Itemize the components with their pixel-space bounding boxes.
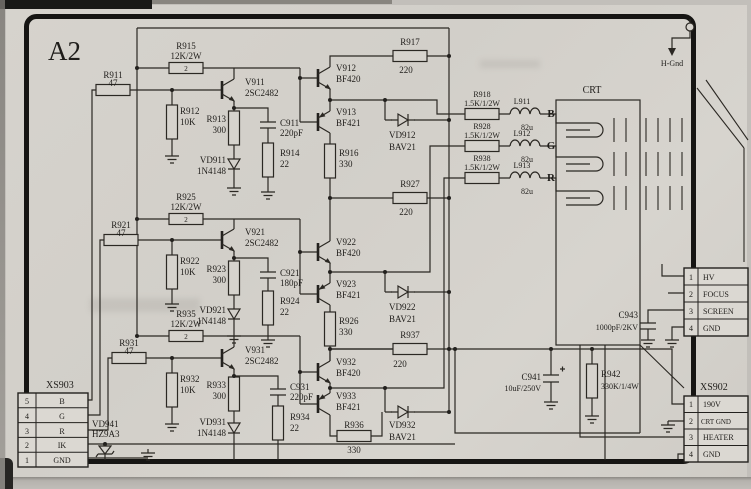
- label-val: 47: [117, 228, 127, 238]
- pin-number: 2: [689, 290, 693, 299]
- ground-icon: [544, 398, 558, 409]
- resistor-r924: [263, 291, 274, 325]
- label-ref: C921: [280, 268, 300, 278]
- resistor-r912: [167, 105, 178, 139]
- label-ref: VD931: [200, 417, 227, 427]
- label-val: BF420: [336, 368, 361, 378]
- label-inner: 2: [184, 333, 188, 341]
- pin-number: 5: [25, 397, 29, 406]
- label-ref: VD932: [389, 420, 416, 430]
- resistor-r932: [167, 373, 178, 407]
- resistor-r937: [393, 344, 427, 355]
- pin-number: 1: [689, 273, 693, 282]
- resistor-r913: [229, 111, 240, 145]
- label-val: 1N4148: [197, 166, 226, 176]
- label-ref: R923: [206, 264, 226, 274]
- ground-icon: [227, 184, 241, 195]
- label-ref: R937: [400, 330, 420, 340]
- label-ref: V933: [336, 391, 356, 401]
- label-ref: V911: [245, 77, 265, 87]
- label-ref: R922: [180, 256, 200, 266]
- label-val: 2SC2482: [245, 356, 279, 366]
- label-ref: R942: [601, 369, 621, 379]
- resistor-r923: [229, 261, 240, 295]
- label-val: 12K/2W: [171, 51, 203, 61]
- label-ref: C941: [521, 372, 541, 382]
- crt-grid-electrodes: [614, 118, 682, 210]
- pin-number: 4: [25, 412, 29, 421]
- resistor-r934: [273, 406, 284, 440]
- label-val: 1.5K/1/2W: [464, 163, 500, 172]
- ground-icon: [661, 421, 675, 432]
- diode-vd921: [228, 302, 240, 326]
- resistor-r927: [393, 193, 427, 204]
- pin-number: 3: [689, 433, 693, 442]
- connector-label: XS902: [700, 382, 728, 393]
- label-ref: R914: [280, 148, 300, 158]
- channel-r: R931 47 R935 12K/2W 2 V931 2SC2482 R932 …: [88, 154, 566, 460]
- pin-number: 2: [25, 441, 29, 450]
- resistor-r928: [465, 141, 499, 152]
- pin-label: G: [59, 412, 65, 421]
- label-ref: V913: [336, 107, 356, 117]
- label-val: 1N4148: [197, 428, 226, 438]
- pin-label: IK: [58, 441, 67, 450]
- label-ref: R917: [400, 37, 420, 47]
- label-ref: R912: [180, 106, 200, 116]
- transistor-v932: [318, 361, 331, 384]
- label-ref: V931: [245, 345, 265, 355]
- signal-letter: R: [547, 172, 556, 184]
- label-ref: R916: [339, 148, 359, 158]
- label-val: 22: [280, 307, 289, 317]
- label-ref: L911: [514, 97, 531, 106]
- label-ref: R938: [473, 154, 490, 163]
- label-val: 300: [213, 275, 227, 285]
- label-val: 10K: [180, 117, 196, 127]
- label-val: 220: [399, 207, 413, 217]
- pin-label: FOCUS: [703, 290, 729, 299]
- label-ref: V922: [336, 237, 356, 247]
- ground-icon: [641, 336, 655, 347]
- diode-vd932: [391, 406, 415, 418]
- scan-artifact-left-edge: [0, 0, 5, 489]
- transistor-v923: [318, 283, 330, 305]
- label-ref: R925: [176, 192, 196, 202]
- misc-components: VD941 HZ9A3 C941 10uF/250V R942 330K/1/4…: [88, 264, 684, 460]
- label-ref: R935: [176, 309, 196, 319]
- pin-number: 2: [689, 417, 693, 426]
- label-ref: R918: [473, 90, 490, 99]
- label-ref: R932: [180, 374, 200, 384]
- label-val: 82u: [521, 187, 533, 196]
- capacitor-c931: [270, 382, 286, 402]
- label-val: 10K: [180, 267, 196, 277]
- label-val: 330: [339, 327, 353, 337]
- pin-label: R: [59, 427, 65, 436]
- label-val: 220pF: [290, 392, 313, 402]
- pin-label: B: [59, 397, 64, 406]
- resistor-r926: [325, 312, 336, 346]
- label-ref: C931: [290, 382, 310, 392]
- transistor-v933: [318, 393, 330, 415]
- ground-icon: [665, 336, 679, 347]
- label-ref: VD941: [92, 419, 119, 429]
- schematic-drawing: R911 47 R915 12K/2W 2 V911 2SC2482 R912 …: [0, 0, 751, 489]
- resistor-r917: [393, 51, 427, 62]
- diode-vd911: [228, 152, 240, 176]
- resistor-r914: [263, 143, 274, 177]
- pin-number: 3: [25, 427, 29, 436]
- diode-vd931: [228, 416, 240, 440]
- connector-label: XS903: [46, 380, 74, 391]
- ground-icon: [585, 412, 599, 423]
- label-val: 180pF: [280, 278, 303, 288]
- transistor-v913: [318, 111, 330, 133]
- transistor-v931: [222, 347, 235, 370]
- label-val: BAV21: [389, 142, 416, 152]
- pin-number: 4: [689, 450, 693, 459]
- ground-icon: [165, 420, 179, 431]
- ground-icon: [261, 188, 275, 199]
- label-val: 2SC2482: [245, 238, 279, 248]
- label-val: 1000pF/2KV: [596, 323, 638, 332]
- ground-icon: [165, 152, 179, 163]
- label-val: BF420: [336, 74, 361, 84]
- inductor-l913: [510, 172, 540, 178]
- label-val: 47: [109, 78, 119, 88]
- pin-label: SCREEN: [703, 307, 734, 316]
- label-val: 47: [125, 346, 135, 356]
- label-ref: VD922: [389, 302, 416, 312]
- connector-xs903: XS903 5 B 4 G 3 R 2 IK 1 GND: [18, 380, 88, 467]
- label-val: 22: [290, 423, 299, 433]
- resistor-r918: [465, 109, 499, 120]
- resistor-r936: [337, 431, 371, 442]
- pin-label: GND: [703, 324, 721, 333]
- pin-number: 1: [25, 456, 29, 465]
- crt-assembly: CRT: [556, 85, 682, 345]
- label-ref: R913: [206, 114, 226, 124]
- signal-letter: B: [547, 108, 555, 120]
- capacitor-c943: [640, 316, 656, 336]
- board-title: A2: [48, 36, 81, 66]
- label-val: BF421: [336, 290, 361, 300]
- capacitor-c921: [260, 265, 276, 285]
- pin-number: 3: [689, 307, 693, 316]
- label-val: 1.5K/1/2W: [464, 131, 500, 140]
- transistor-v921: [222, 229, 235, 252]
- label-val: BF421: [336, 118, 361, 128]
- inductor-l912: [510, 140, 540, 146]
- label-val: 220: [393, 359, 407, 369]
- label-ref: C943: [618, 310, 638, 320]
- h-gnd-label: H-Gnd: [661, 59, 683, 68]
- label-ref: C911: [280, 118, 299, 128]
- pin-number: 4: [689, 324, 693, 333]
- label-ref: R934: [290, 412, 310, 422]
- resistor-r933: [229, 377, 240, 411]
- label-val: 330K/1/4W: [601, 382, 639, 391]
- label-ref: L912: [514, 129, 531, 138]
- label-ref: R927: [400, 179, 420, 189]
- label-ref: R933: [206, 380, 226, 390]
- resistor-r922: [167, 255, 178, 289]
- pin-number: 1: [689, 400, 693, 409]
- transistor-v922: [318, 241, 331, 264]
- label-val: 1.5K/1/2W: [464, 99, 500, 108]
- label-ref: V921: [245, 227, 265, 237]
- inductor-l911: [510, 108, 540, 114]
- label-val: 10uF/250V: [505, 384, 542, 393]
- pin-label: CRT GND: [701, 418, 731, 426]
- label-ref: R926: [339, 316, 359, 326]
- label-val: 300: [213, 391, 227, 401]
- label-ref: L913: [514, 161, 531, 170]
- diode-vd912: [391, 114, 415, 126]
- crt-label: CRT: [583, 85, 602, 96]
- label-inner: 2: [184, 65, 188, 73]
- pin-label: HEATER: [703, 433, 734, 442]
- label-ref: R928: [473, 122, 490, 131]
- label-ref: VD921: [200, 305, 227, 315]
- label-val: 12K/2W: [171, 202, 203, 212]
- label-val: 330: [339, 159, 353, 169]
- resistor-r916: [325, 144, 336, 178]
- label-val: BF420: [336, 248, 361, 258]
- transistor-v911: [222, 79, 235, 102]
- pin-label: GND: [53, 456, 71, 465]
- label-val: 330: [347, 445, 361, 455]
- label-val: 10K: [180, 385, 196, 395]
- resistor-r938: [465, 173, 499, 184]
- label-val: 22: [280, 159, 289, 169]
- pin-label: GND: [703, 450, 721, 459]
- label-inner: 2: [184, 216, 188, 224]
- label-ref: VD912: [389, 130, 416, 140]
- label-val: 12K/2W: [171, 319, 203, 329]
- label-val: BAV21: [389, 314, 416, 324]
- resistor-r942: [587, 364, 598, 398]
- label-val: BF421: [336, 402, 361, 412]
- label-val: 220: [399, 65, 413, 75]
- connector-crt-socket: 1 HV 2 FOCUS 3 SCREEN 4 GND: [684, 268, 748, 336]
- diode-vd922: [391, 286, 415, 298]
- capacitor-c911: [260, 115, 276, 135]
- label-val: 220pF: [280, 128, 303, 138]
- label-val: HZ9A3: [92, 429, 120, 439]
- label-ref: V923: [336, 279, 356, 289]
- label-ref: R915: [176, 41, 196, 51]
- schematic-page: R911 47 R915 12K/2W 2 V911 2SC2482 R912 …: [0, 0, 751, 489]
- label-ref: VD911: [200, 155, 226, 165]
- label-val: 2SC2482: [245, 88, 279, 98]
- label-ref: V912: [336, 63, 356, 73]
- label-ref: R936: [344, 420, 364, 430]
- scan-artifact-bottom: [0, 477, 751, 489]
- label-val: 300: [213, 125, 227, 135]
- transistor-v912: [318, 67, 331, 90]
- pin-label: HV: [703, 273, 715, 282]
- h-gnd: H-Gnd: [661, 19, 694, 68]
- label-ref: V932: [336, 357, 356, 367]
- pin-label: 190V: [703, 400, 721, 409]
- signal-letter: G: [547, 140, 556, 152]
- label-val: BAV21: [389, 432, 416, 442]
- label-ref: R924: [280, 296, 300, 306]
